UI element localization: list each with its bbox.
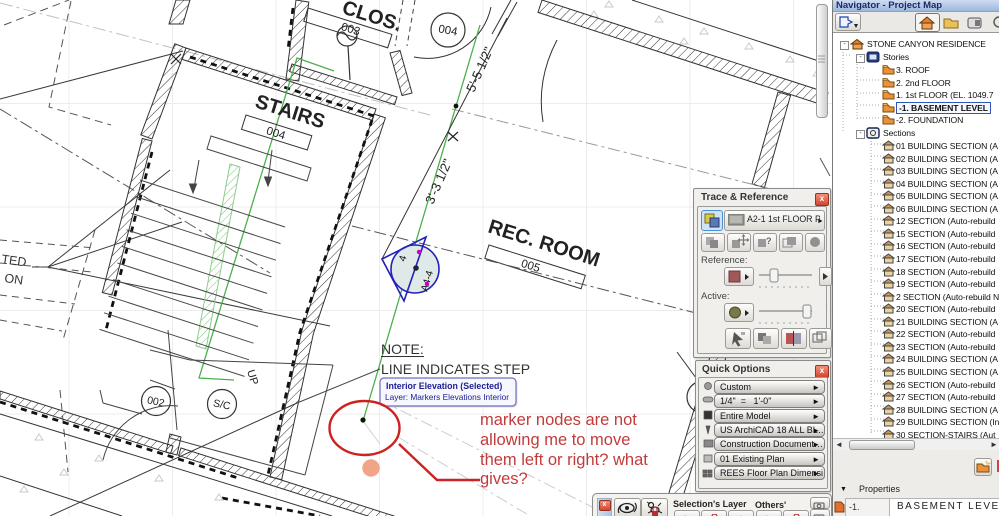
svg-text:3'-3 1/2": 3'-3 1/2" [422,156,455,206]
svg-text:Interior Elevation (Selected): Interior Elevation (Selected) [386,381,502,391]
svg-text:Layer: Markers Elevations Inte: Layer: Markers Elevations Interior [385,392,509,402]
svg-text:NOTE:: NOTE: [381,341,424,357]
svg-text:TED: TED [1,252,28,269]
svg-text:5'-5 1/2": 5'-5 1/2" [463,44,496,94]
svg-text:marker nodes are not: marker nodes are not [480,411,637,429]
svg-text:allowing me to move: allowing me to move [480,431,630,449]
svg-text:gives?: gives? [480,470,528,488]
svg-text:them left or right? what: them left or right? what [480,451,648,469]
svg-text:S/C: S/C [212,397,232,412]
svg-text:004: 004 [265,125,287,142]
svg-text:002: 002 [146,394,166,409]
svg-text:004: 004 [437,23,459,38]
svg-text:ON: ON [4,271,25,287]
svg-text:REC. ROOM: REC. ROOM [485,216,602,272]
svg-text:LINE INDICATES STEP: LINE INDICATES STEP [381,361,530,377]
svg-text:UP: UP [244,368,260,386]
svg-text:?: ? [766,236,772,246]
